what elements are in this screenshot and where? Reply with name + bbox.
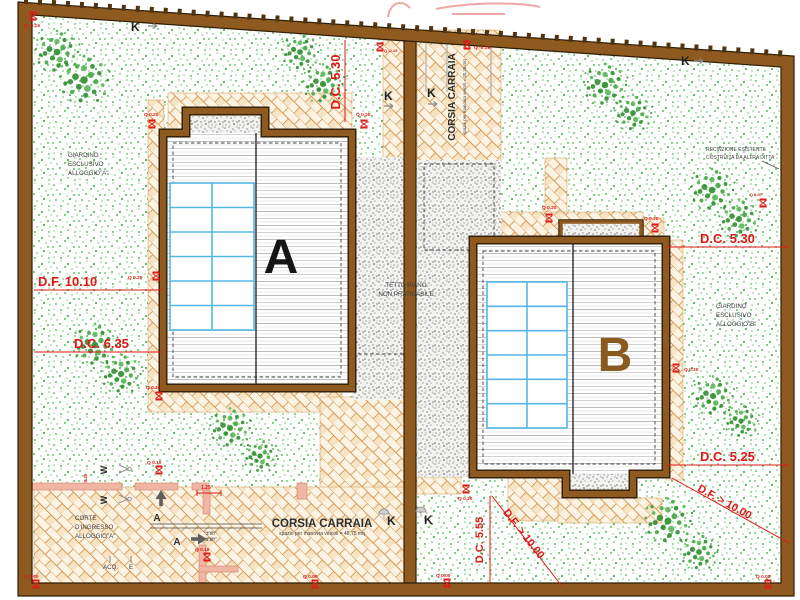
svg-text:COSTRUITA DA ALTRA DITTA: COSTRUITA DA ALTRA DITTA	[706, 155, 775, 161]
corsia-top-title: CORSIA CARRAIA	[447, 53, 458, 140]
section-a-label: A	[173, 537, 180, 548]
elev-q000: Q 0.00	[436, 573, 451, 579]
dividing-wall	[404, 32, 416, 584]
gate-k-symbol: K	[387, 514, 396, 528]
site-plan-page: A B	[0, 0, 800, 600]
dim-wall-020: 0.20	[83, 473, 88, 482]
elev-minus-019: Q -0.19	[384, 48, 398, 53]
corte-a-label: CORTE	[75, 515, 97, 522]
gate-k-symbol: K	[131, 20, 140, 34]
elev-q000: Q 0.00	[24, 574, 39, 580]
e-label: E	[129, 564, 133, 571]
dim-160: 1.60	[206, 537, 215, 542]
elev-q020: Q 0.20	[684, 367, 699, 373]
elev-q020: Q 0.20	[146, 385, 161, 391]
svg-text:ESCLUSIVO: ESCLUSIVO	[716, 312, 752, 319]
elev-q020: Q 0.20	[458, 496, 473, 502]
elev-minus-019: Q -0.19	[474, 45, 490, 51]
path-below-b	[558, 498, 662, 523]
garden-b-label: GIARDINO	[716, 303, 747, 310]
gate-w-symbol: W	[99, 495, 109, 504]
gate-k-symbol: K	[681, 54, 690, 68]
svg-text:ALLOGGIO"A": ALLOGGIO"A"	[68, 170, 109, 177]
solar-grid-a	[170, 183, 254, 330]
garden-a-label: GIARDINO	[68, 152, 99, 159]
dim-dc-635: D.C. 6.35	[74, 336, 129, 351]
elev-q020: Q 0.20	[644, 216, 659, 222]
corsia-top-subtitle: spazio per manovra veicoli = 20,35 mq	[462, 59, 467, 135]
dim-dc-555: D.C. 5.55	[474, 517, 486, 563]
dim-300: 3.00	[206, 531, 215, 536]
dim-125: 1.25	[201, 485, 211, 491]
flat-roof-b-strip	[417, 240, 474, 477]
building-a: A	[163, 111, 352, 388]
elev-q020: Q 0.20	[356, 112, 371, 118]
path-below-b-left	[417, 477, 461, 494]
elev-minus-015: Q -0.15	[24, 23, 40, 29]
elev-q020: Q 0.20	[128, 275, 143, 281]
solar-grid-b	[487, 282, 567, 428]
gate-k-symbol: K	[424, 513, 433, 527]
elev-q020: Q 0.20	[542, 205, 557, 211]
flat-roof-a-strip	[352, 157, 405, 400]
revision-scribble	[388, 3, 540, 17]
building-b: B	[473, 222, 666, 494]
tetto-label: TETTO PIANO	[385, 282, 426, 289]
site-plan-drawing: A B	[0, 0, 800, 600]
gate-w-symbol: W	[99, 465, 109, 474]
dim-dc-530-top: D.C. 5.30	[328, 55, 343, 110]
svg-text:D'INGRESSO: D'INGRESSO	[75, 524, 113, 531]
svg-text:ALLOGGIO"B": ALLOGGIO"B"	[716, 321, 757, 328]
elev-q020: Q 0.20	[144, 112, 159, 118]
dim-dc-525: D.C. 5.25	[700, 449, 755, 464]
recinzione-label: RECINZIONE ESISTENTE	[706, 147, 767, 153]
corsia-bottom-subtitle: spazio per manovra veicoli = 48,75 mq	[279, 531, 365, 537]
elev-q010: Q 0.10	[195, 547, 210, 553]
elev-q000: Q 0.00	[756, 574, 771, 580]
dim-dc-530-right: D.C. 5.30	[700, 231, 755, 246]
dim-df-1010: D.F. 10.10	[38, 274, 97, 289]
svg-text:NON PRATICABILE: NON PRATICABILE	[378, 291, 433, 298]
flat-roof-b-top	[417, 160, 501, 240]
elev-q000: Q 0.00	[303, 574, 318, 580]
acq-label: ACQ.	[103, 564, 118, 571]
gate-k-symbol: K	[384, 89, 393, 103]
svg-text:ESCLUSIVO: ESCLUSIVO	[68, 161, 104, 168]
section-a-label: A	[153, 513, 160, 524]
elev-q020: Q 0.20	[750, 193, 761, 197]
svg-text:ALLOGGIO"A": ALLOGGIO"A"	[75, 533, 116, 540]
path-connector-a	[320, 397, 405, 489]
building-a-label: A	[264, 231, 299, 284]
building-b-label: B	[598, 329, 633, 382]
elev-q010: Q 0.10	[147, 460, 162, 466]
gate-k-symbol: K	[427, 86, 436, 100]
corsia-bottom-title: CORSIA CARRAIA	[272, 518, 373, 530]
